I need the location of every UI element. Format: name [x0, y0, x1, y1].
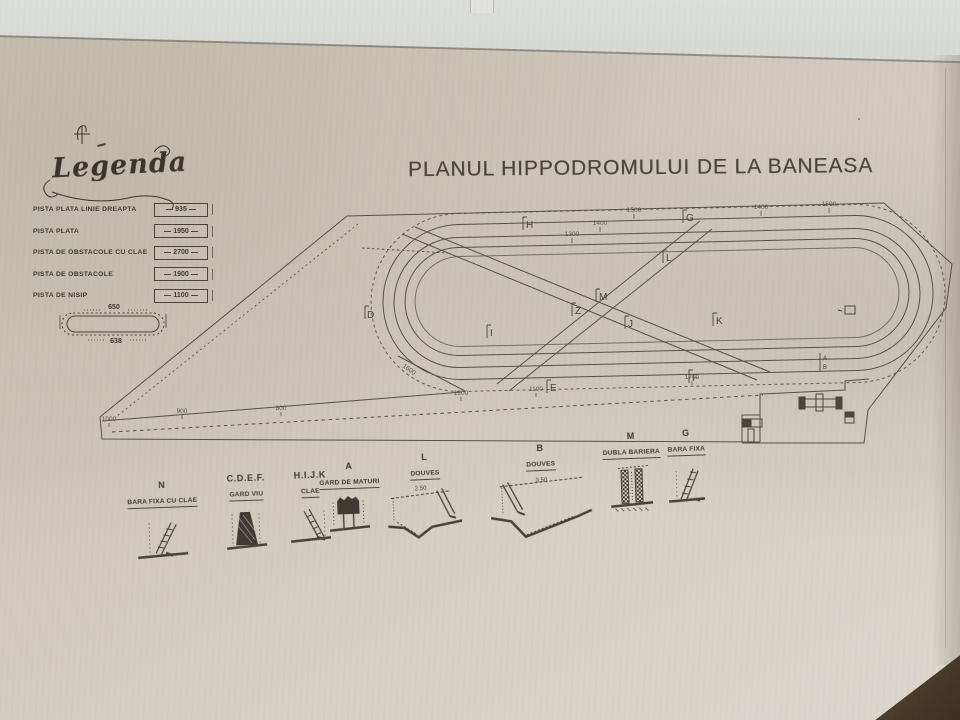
detail-letter: L: [384, 450, 464, 464]
plan-dimension: 1500: [627, 207, 642, 214]
drawing-stroke: [138, 554, 188, 559]
plan-dimension: 1400: [593, 220, 608, 227]
oval-tracks: [369, 203, 947, 394]
left-switch-dashes: [362, 248, 448, 253]
detail-name: BARA FIXA: [668, 446, 706, 457]
plan-boundary-top-right: [347, 203, 952, 410]
marker-letter-a: A: [823, 356, 827, 362]
jump-detail-cdef: C.D.E.F. GARD VIU: [211, 472, 284, 556]
sand-track-dashed: [112, 395, 763, 432]
drawing-stroke: [836, 397, 842, 409]
drawing-stroke: [845, 412, 854, 417]
drawing-stroke: [393, 227, 922, 369]
detail-letter: G: [657, 427, 715, 439]
marker-letter-k: K: [716, 316, 723, 327]
marker-letter-i: I: [490, 328, 493, 339]
marker-letter-e: E: [550, 383, 557, 394]
detail-letter: N: [114, 478, 210, 492]
drawing-stroke: [615, 508, 648, 512]
plan-boundary-left-dashed: [116, 224, 358, 417]
drawing-stroke: [344, 513, 355, 528]
drawing-stroke: [816, 394, 823, 411]
marker-letter-z: Z: [575, 306, 581, 317]
grandstand-enclosure: [760, 379, 869, 442]
bar-cross-section: [666, 459, 710, 508]
plan-dimension: 1200: [454, 390, 469, 397]
plan-dimension: 1500: [822, 201, 837, 208]
brush-fence-cross-section: [327, 492, 375, 538]
drawing-stroke: [518, 512, 525, 515]
jump-detail-l: L DOUVES 2.50: [384, 450, 468, 543]
hippodrome-plan: D H G L M Z I J K E F A B 1500 1400 1300…: [0, 0, 960, 720]
ditch-dimension: 2.50: [415, 486, 428, 493]
drawing-stroke: [491, 510, 593, 538]
photographed-book-page: PLANUL HIPPODROMULUI DE LA BANEASA Legen…: [0, 0, 960, 720]
bar-cross-section: [135, 510, 193, 564]
drawing-stroke: [502, 488, 503, 514]
detail-name: DOUVES: [410, 470, 439, 481]
drawing-stroke: [387, 488, 463, 539]
drawing-stroke: [369, 203, 947, 394]
drawing-stroke: [337, 496, 360, 515]
drawing-stroke: [330, 527, 370, 531]
detail-name: DOUVES: [526, 461, 555, 472]
marker-letter-j: J: [628, 319, 633, 330]
jump-detail-n: N BARA FIXA CU CLAE: [114, 478, 213, 565]
detail-name: GARD DE MATURI: [319, 478, 380, 490]
detail-name: DUBLA BARIERA: [603, 448, 661, 460]
plan-dimension: 1400: [754, 204, 769, 211]
plan-dimension: 1300: [565, 231, 580, 238]
marker-letter-m: M: [599, 292, 607, 303]
plan-boundary-left-bottom: [100, 216, 760, 442]
ditch-dimension: 3.50: [536, 478, 549, 485]
jump-detail-g: G BARA FIXA: [657, 427, 718, 508]
drawing-stroke: [742, 419, 751, 427]
detail-name: GARD VIU: [229, 491, 263, 502]
drawing-stroke: [799, 397, 805, 409]
drawing-stroke: [635, 469, 643, 502]
grandstand-buildings: [742, 306, 855, 442]
ditch-cross-section: 3.50: [489, 472, 596, 544]
drawing-stroke: [802, 399, 840, 407]
drawing-stroke: [668, 469, 705, 502]
detail-name: BARA FIXA CU CLAE: [127, 497, 197, 509]
drawing-stroke: [748, 429, 754, 442]
drawing-stroke: [155, 523, 177, 556]
drawing-stroke: [621, 471, 629, 504]
detail-letter: C.D.E.F.: [211, 472, 281, 485]
hedge-cross-section: [224, 504, 272, 556]
marker-letter-l: L: [666, 253, 672, 264]
jump-detail-b: B DOUVES 3.50: [488, 441, 596, 545]
drawing-stroke: [393, 499, 394, 523]
jump-detail-a: A GARD DE MATURI: [311, 460, 390, 538]
drawing-stroke: [838, 310, 842, 311]
double-barrier-cross-section: [608, 462, 658, 514]
drawing-stroke: [149, 524, 150, 554]
drawing-stroke: [611, 503, 653, 507]
drawing-stroke: [291, 538, 331, 542]
drawing-stroke: [450, 516, 456, 518]
ditch-cross-section: 2.50: [386, 482, 466, 543]
plan-dimension: 900: [177, 408, 188, 415]
marker-letter-h: H: [526, 220, 533, 231]
plan-dimension: 1100: [529, 386, 543, 393]
drawing-stroke: [388, 521, 463, 539]
plan-dimension: 800: [276, 405, 287, 412]
drawing-stroke: [676, 472, 677, 498]
drawing-stroke: [618, 466, 648, 469]
drawing-stroke: [680, 469, 699, 502]
drawing-stroke: [489, 477, 592, 538]
marker-letter-g: G: [686, 213, 694, 224]
plan-dimension: 1000: [102, 416, 117, 423]
marker-letter-d: D: [367, 310, 374, 321]
dimension-numbers: 1500 1400 1300 1400 1500 1600 1200 1100 …: [102, 201, 837, 423]
drawing-stroke: [681, 472, 697, 495]
drawing-stroke: [137, 523, 188, 559]
marker-flags: [365, 210, 820, 393]
diagonal-track-nw-se: [402, 227, 770, 380]
drawing-stroke: [845, 306, 855, 314]
drawing-stroke: [610, 466, 654, 512]
marker-letter-b: B: [823, 365, 827, 371]
drawing-stroke: [632, 472, 633, 502]
plan-dimension: 1700: [685, 374, 700, 381]
detail-letter: A: [311, 460, 387, 473]
drawing-stroke: [437, 488, 455, 517]
